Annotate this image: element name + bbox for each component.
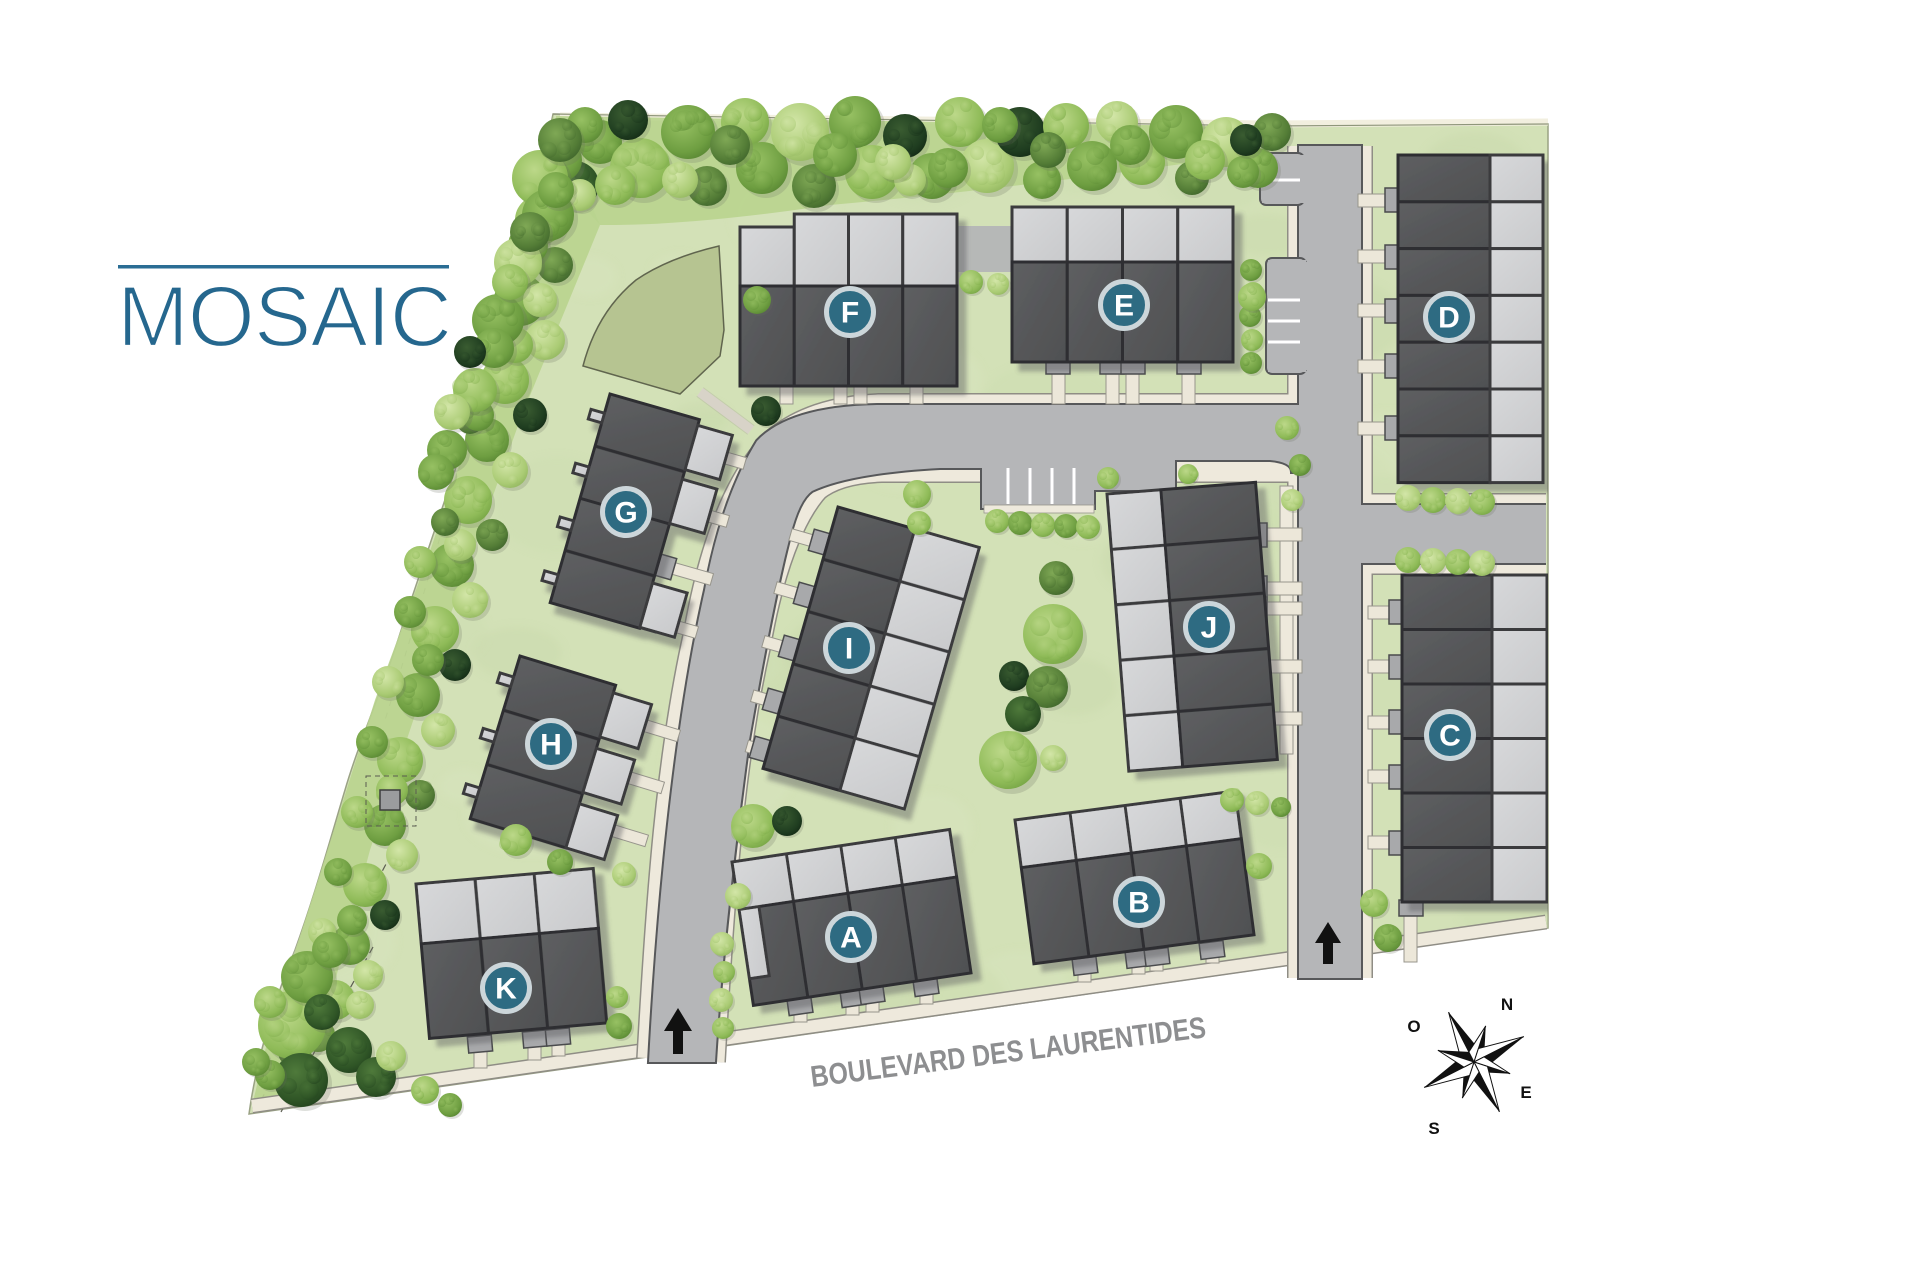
svg-text:G: G bbox=[614, 497, 637, 530]
svg-text:K: K bbox=[495, 973, 517, 1006]
svg-text:MOSAIC: MOSAIC bbox=[117, 269, 451, 365]
svg-text:E: E bbox=[1520, 1083, 1531, 1102]
svg-text:C: C bbox=[1439, 720, 1461, 753]
svg-text:H: H bbox=[540, 729, 562, 762]
svg-text:J: J bbox=[1201, 612, 1218, 645]
svg-text:S: S bbox=[1428, 1119, 1439, 1138]
svg-text:D: D bbox=[1438, 302, 1460, 335]
svg-text:I: I bbox=[845, 633, 853, 666]
svg-text:N: N bbox=[1501, 995, 1513, 1014]
svg-text:F: F bbox=[841, 297, 859, 330]
svg-text:O: O bbox=[1407, 1017, 1420, 1036]
svg-text:B: B bbox=[1128, 887, 1150, 920]
svg-text:A: A bbox=[840, 922, 862, 955]
svg-text:E: E bbox=[1114, 290, 1134, 323]
